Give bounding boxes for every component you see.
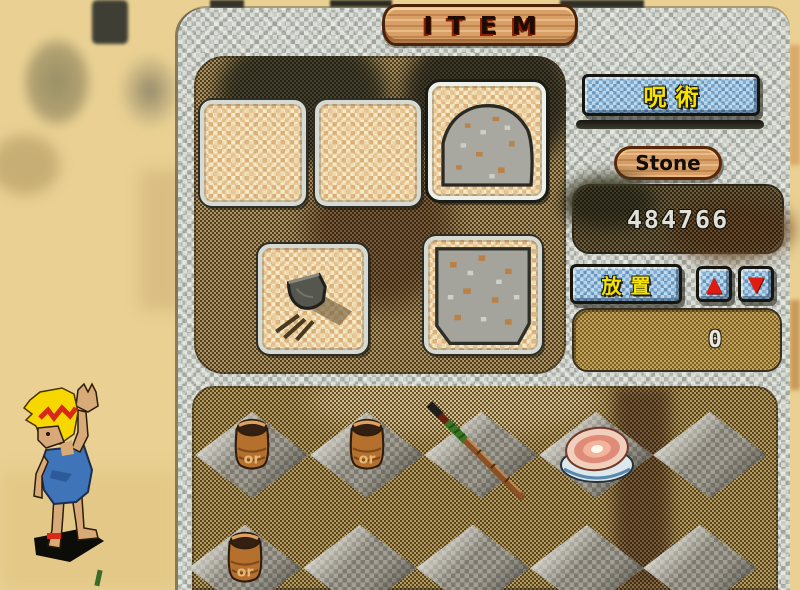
magic-button-label: 呪術 <box>635 78 708 112</box>
ground-tile-1-3-spear[interactable] <box>423 411 539 499</box>
place-button[interactable]: 放置 <box>570 264 682 304</box>
stone-tile <box>642 524 758 590</box>
count-increase-button[interactable]: ▲ <box>696 266 732 302</box>
inventory-slot-3-stone-selected[interactable] <box>428 82 546 200</box>
background-canopy <box>330 0 392 7</box>
selected-item-name-tag: Stone <box>614 146 722 180</box>
down-arrow-icon: ▼ <box>748 274 764 295</box>
ground-tile-1-5-empty[interactable] <box>652 411 768 499</box>
player-character-sprite <box>14 378 119 583</box>
inventory-slot-4-pot[interactable] <box>258 244 368 354</box>
stone-tile <box>192 524 303 590</box>
game-screen: ITEM <box>0 0 800 590</box>
count-decrease-button[interactable]: ▼ <box>738 266 774 302</box>
ground-tile-2-5-empty[interactable] <box>642 524 758 590</box>
stone-tile <box>309 411 425 499</box>
ground-tile-2-4-empty[interactable] <box>529 524 645 590</box>
place-button-label: 放置 <box>593 270 660 299</box>
place-count-value: 0 <box>574 310 780 370</box>
stone-tile <box>652 411 768 499</box>
item-panel-title-banner: ITEM <box>382 4 578 46</box>
inventory-slot-2-empty[interactable] <box>315 100 421 206</box>
inventory-slot-5-stone-block[interactable] <box>424 236 542 354</box>
stone-boulder-icon <box>432 86 542 196</box>
ground-tile-1-2-barrel[interactable] <box>309 411 425 499</box>
ground-tile-2-2-empty[interactable] <box>302 524 418 590</box>
background-bush <box>118 52 182 130</box>
item-panel: ITEM <box>178 8 790 590</box>
panel-title: ITEM <box>408 11 551 40</box>
item-quantity-value: 484766 <box>574 186 782 252</box>
background-sand-patch <box>789 45 800 165</box>
place-count-display: 0 <box>572 308 782 372</box>
stone-tile <box>538 411 654 499</box>
ground-tile-1-1-barrel[interactable] <box>194 411 310 499</box>
divider-shadow-bar <box>576 120 764 129</box>
inventory-slot-1-empty[interactable] <box>200 100 306 206</box>
stone-tile <box>415 524 531 590</box>
stone-tile <box>302 524 418 590</box>
background-bush <box>20 34 94 130</box>
background-sand-patch <box>790 300 800 390</box>
background-tree-trunk <box>92 0 128 44</box>
stone-tile <box>423 411 539 499</box>
background-sand-patch <box>0 135 60 195</box>
ground-tile-2-1-barrel[interactable] <box>192 524 303 590</box>
stone-block-icon <box>428 240 538 350</box>
background-canopy <box>210 0 244 8</box>
ground-tile-1-4-meat[interactable] <box>538 411 654 499</box>
ground-tile-2-3-empty[interactable] <box>415 524 531 590</box>
ground-grid-well: or or <box>192 386 778 590</box>
selected-item-name: Stone <box>635 151 701 175</box>
cooking-pot-icon <box>262 248 364 350</box>
item-quantity-display: 484766 <box>572 184 784 254</box>
stone-tile <box>194 411 310 499</box>
stone-tile <box>529 524 645 590</box>
magic-button[interactable]: 呪術 <box>582 74 760 116</box>
up-arrow-icon: ▲ <box>706 274 722 295</box>
